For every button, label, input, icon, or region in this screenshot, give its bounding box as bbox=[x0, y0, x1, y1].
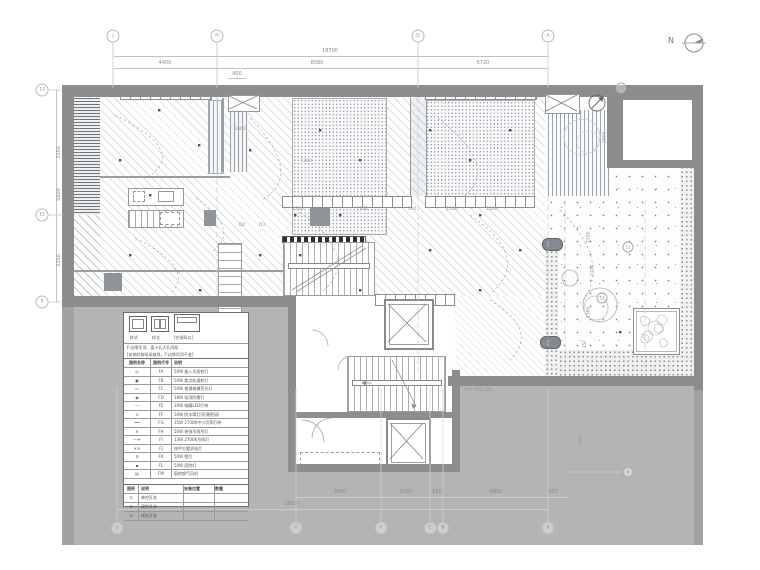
site-ground-left-edge bbox=[62, 307, 74, 545]
switch-qty bbox=[215, 494, 248, 502]
dim-bottom-segment: 650 bbox=[547, 490, 559, 495]
column-3 bbox=[310, 208, 330, 226]
grid-bubble-bottom: A bbox=[542, 522, 555, 535]
legend-row: ━━ FG 35W 2700K中小功率灯带 bbox=[124, 419, 248, 428]
terrace-hatch bbox=[455, 296, 545, 376]
stair-upper-rail bbox=[288, 263, 370, 269]
marker-label: 11 bbox=[625, 245, 630, 250]
plan-dim-label: 1200 bbox=[446, 208, 457, 213]
dim-left: 5600 bbox=[57, 187, 62, 202]
dim-top-segment: 4400 bbox=[158, 61, 173, 66]
legend-row: ◎ FA 50W 嵌入式投射灯 bbox=[124, 368, 248, 377]
grid-label: 9 bbox=[41, 300, 44, 305]
switch-header-qty: 数量 bbox=[215, 485, 248, 493]
legend-row: ✕✕ FJ 按甲方要求选灯 bbox=[124, 445, 248, 454]
grid-label: J bbox=[116, 526, 117, 531]
legend-row: —✛ FI 13W 2700K吊线灯 bbox=[124, 436, 248, 445]
switch-description: 调光开关 bbox=[139, 512, 184, 520]
switch-mount bbox=[184, 503, 215, 511]
north-arrow-icon bbox=[680, 30, 708, 56]
grid-bubble-top: A bbox=[542, 30, 555, 43]
bollard-light-2 bbox=[540, 336, 561, 349]
shaft-x-box-right bbox=[545, 94, 580, 114]
elevator-1 bbox=[384, 299, 434, 350]
switch-row: ② 双控开关 bbox=[124, 503, 248, 512]
diffuser-icon-1 bbox=[129, 316, 147, 332]
legend-row: ▭ FC 50W 普通格栅荧光灯 bbox=[124, 385, 248, 394]
legend-row: ▤ FM 厨房换气风机 bbox=[124, 470, 248, 479]
fixture-code: FD bbox=[151, 394, 172, 402]
switch-qty bbox=[215, 503, 248, 511]
floor-plan-sheet: N 18700 440085805720 400 335056003250 38… bbox=[0, 0, 760, 570]
site-ground-right-band bbox=[694, 386, 703, 545]
switch-header-desc: 说明 bbox=[139, 485, 184, 493]
grid-label: 13 bbox=[39, 88, 45, 93]
plan-dim-label: 1200 bbox=[486, 208, 497, 213]
fixture-symbol-icon: ▤ bbox=[124, 470, 151, 478]
switch-qty bbox=[215, 512, 248, 520]
fixture-description: 厨房换气风机 bbox=[172, 470, 248, 478]
grid-bubble-left: 12 bbox=[36, 209, 49, 222]
marker-label: 13 bbox=[599, 296, 604, 301]
garden-left-band bbox=[545, 250, 559, 376]
wall-tower-right bbox=[452, 370, 460, 472]
fixture-code: FB bbox=[151, 377, 172, 385]
plan-dim-label: D3 bbox=[259, 224, 265, 229]
legend-header-desc: 说明 bbox=[172, 359, 248, 367]
switch-symbol-icon: ③ bbox=[124, 512, 139, 520]
dotted-ceiling-room-1b bbox=[292, 207, 387, 235]
kitchen-appliance-1 bbox=[133, 191, 145, 202]
switch-header-mount: 安装位置 bbox=[184, 485, 215, 493]
legend-note-2: [安装时按现场放线，F:边缘吊顶不变] bbox=[124, 351, 248, 358]
switch-description: 单控开关 bbox=[139, 494, 184, 502]
plan-dim-label: 2280 bbox=[587, 232, 592, 243]
fixture-description: 50W 嵌入式投射灯 bbox=[172, 368, 248, 376]
plan-dim-label: 400 400 200 bbox=[464, 389, 493, 394]
fixture-description: 按甲方要求选灯 bbox=[172, 445, 248, 453]
fixture-symbol-icon: ✕ bbox=[124, 428, 151, 436]
dim-bottom-segment: 2160 bbox=[399, 490, 414, 495]
legend-row: ▪ FL 50W 庭院灯 bbox=[124, 462, 248, 471]
plan-marker-bubble: 11 bbox=[623, 242, 634, 253]
grid-label: B bbox=[441, 526, 444, 531]
dim-top-seg-line bbox=[113, 68, 548, 69]
switch-symbol-icon: ② bbox=[124, 503, 139, 511]
plan-dim-label: 1740 bbox=[292, 208, 303, 213]
grid-bubble-top: D bbox=[412, 30, 425, 43]
fixture-code: FE bbox=[151, 402, 172, 410]
diffuser-icon-3 bbox=[174, 314, 200, 332]
diffuser-icon-2 bbox=[151, 316, 169, 332]
wall-band-hatch bbox=[410, 98, 427, 196]
legend-header-code: 图例代号 bbox=[151, 359, 172, 367]
box-caption-3: [空调风口] bbox=[174, 335, 193, 341]
switch-row: ① 单控开关 bbox=[124, 494, 248, 503]
deck-louver-strip bbox=[74, 98, 100, 215]
fixture-symbol-icon: ┈┈ bbox=[124, 402, 151, 410]
fixture-code: FA bbox=[151, 368, 172, 376]
plan-dim-label: 2200 bbox=[591, 265, 596, 276]
fixture-symbol-icon: ♀ bbox=[124, 453, 151, 461]
switch-row: ③ 调光开关 bbox=[124, 512, 248, 521]
legend-row: ┈┈ FE 20W 暗藏LED灯带 bbox=[124, 402, 248, 411]
elevator-2 bbox=[386, 418, 431, 468]
grid-label: A bbox=[546, 526, 549, 531]
marker-label: 11 bbox=[618, 86, 623, 91]
rock-planter-inner bbox=[636, 311, 677, 352]
plan-dim-label: 1260 bbox=[300, 160, 311, 165]
dotted-ceiling-room-2 bbox=[425, 100, 535, 198]
kitchen-oven bbox=[160, 212, 180, 225]
fixture-code: FC bbox=[151, 385, 172, 393]
partition-room-a bbox=[222, 98, 224, 172]
dim-top-total-line bbox=[113, 56, 548, 57]
switch-table: 图例 说明 安装位置 数量 ① 单控开关 ② 双控开关 ③ 调光开关 bbox=[124, 484, 248, 521]
dim-bottom-segment: 560 bbox=[431, 490, 443, 495]
fixture-symbol-icon: ◎ bbox=[124, 368, 151, 376]
fixture-code: FK bbox=[151, 453, 172, 461]
plan-dim-label: D2 bbox=[239, 224, 245, 229]
switch-description: 双控开关 bbox=[139, 503, 184, 511]
dim-bottom-segment: 3800 bbox=[333, 490, 348, 495]
fixture-description: 35W 2700K中小功率灯带 bbox=[172, 419, 248, 427]
dim-top-segment: 5720 bbox=[476, 61, 491, 66]
garden-deck bbox=[548, 110, 610, 196]
switch-symbol-icon: ① bbox=[124, 494, 139, 502]
fixture-description: 50W 焦点轨道射灯 bbox=[172, 377, 248, 385]
skylight-room-void bbox=[623, 100, 692, 160]
plan-dim-label: 310 bbox=[408, 208, 417, 213]
fixture-code: FG bbox=[151, 419, 172, 427]
fixture-symbol-icon: —✛ bbox=[124, 436, 151, 444]
switch-header-symbol: 图例 bbox=[124, 485, 139, 493]
grid-bubble-bottom: G bbox=[290, 522, 303, 535]
fixture-symbol-icon: ▣ bbox=[124, 377, 151, 385]
marker-label: 4 bbox=[627, 470, 630, 475]
fixture-description: 20W 暗藏LED灯带 bbox=[172, 402, 248, 410]
fixture-symbol-icon: ▭ bbox=[124, 385, 151, 393]
north-arrow: N bbox=[668, 30, 708, 56]
dotted-ceiling-room-1 bbox=[292, 98, 387, 198]
dim-bottom-total: 18700 bbox=[283, 502, 301, 507]
legend-row: ◉ FD 18W 吸顶防雾灯 bbox=[124, 394, 248, 403]
plan-marker-bubble: 4 bbox=[623, 467, 634, 478]
plan-dim-label: 2420 bbox=[579, 435, 584, 446]
fixture-symbol-icon: ◉ bbox=[124, 394, 151, 402]
plan-marker-bubble: 13 bbox=[597, 293, 608, 304]
grid-bubble-top: H bbox=[211, 30, 224, 43]
switch-table-header: 图例 说明 安装位置 数量 bbox=[124, 485, 248, 494]
legend-table-header: 图例名称 图例代号 说明 bbox=[124, 359, 248, 368]
stair-tower-rail bbox=[352, 380, 442, 386]
fixture-code: FH bbox=[151, 428, 172, 436]
column-1 bbox=[104, 273, 122, 291]
column-2 bbox=[204, 210, 216, 226]
fixture-description: 50W 壁灯 bbox=[172, 453, 248, 461]
dim-bottom-segment: 4850 bbox=[489, 490, 504, 495]
shaft-x-box-left bbox=[228, 95, 260, 112]
dim-top-sub: 400 bbox=[231, 72, 243, 77]
plan-dim-label: 1760 bbox=[356, 208, 367, 213]
fixture-description: 50W 普通格栅荧光灯 bbox=[172, 385, 248, 393]
plan-marker-bubble: 11 bbox=[616, 83, 627, 94]
fixture-description: 13W 2700K吊线灯 bbox=[172, 436, 248, 444]
dim-top-total: 18700 bbox=[321, 49, 339, 54]
grid-bubble-top: J bbox=[107, 30, 120, 43]
grid-bubble-bottom: J bbox=[111, 522, 124, 535]
partition-room-a-bottom bbox=[100, 176, 230, 178]
partition-hall bbox=[74, 270, 288, 272]
fixture-symbol-icon: ▪ bbox=[124, 462, 151, 470]
stair-upper bbox=[283, 242, 375, 296]
dim-top-segment: 8580 bbox=[310, 61, 325, 66]
grid-bubble-bottom: B bbox=[437, 522, 450, 535]
legend-header-name: 图例名称 bbox=[124, 359, 151, 367]
legend-row: ♀ FK 50W 壁灯 bbox=[124, 453, 248, 462]
fixture-code: FM bbox=[151, 470, 172, 478]
plan-dim-label: 1580 bbox=[587, 307, 592, 318]
dim-left: 3250 bbox=[57, 253, 62, 268]
plan-dim-label: 1860 bbox=[234, 128, 245, 133]
fixture-code: FJ bbox=[151, 445, 172, 453]
plan-dim-label: 350 bbox=[584, 340, 589, 349]
fixture-description: 50W 防水筒灯(防潮密闭) bbox=[172, 411, 248, 419]
grid-label: A bbox=[546, 34, 549, 39]
fixture-description: 18W 吸顶防雾灯 bbox=[172, 394, 248, 402]
fixture-code: FI bbox=[151, 436, 172, 444]
wall-tower-bottom bbox=[288, 464, 460, 472]
fixture-symbol-icon: ━━ bbox=[124, 419, 151, 427]
box-caption-2: 样式 bbox=[152, 335, 160, 341]
grid-label: 12 bbox=[39, 213, 45, 218]
glazing-row-2 bbox=[425, 196, 535, 208]
legend-row: ▣ FB 50W 焦点轨道射灯 bbox=[124, 377, 248, 386]
wall-left bbox=[62, 85, 74, 307]
grid-bubble-left: 9 bbox=[36, 296, 49, 309]
north-label: N bbox=[668, 36, 674, 45]
grid-bubble-bottom: C bbox=[424, 522, 437, 535]
fixture-description: 50W 装饰吊线吊灯 bbox=[172, 428, 248, 436]
plan-dim-label: 3600 bbox=[603, 132, 608, 143]
legend-table: 图例名称 图例代号 说明 ◎ FA 50W 嵌入式投射灯 ▣ FB 50W 焦点… bbox=[124, 358, 248, 479]
kitchen-appliance-2 bbox=[158, 191, 174, 202]
dim-left: 3350 bbox=[57, 145, 62, 160]
fixture-symbol-icon: ✕✕ bbox=[124, 445, 151, 453]
grid-label: C bbox=[428, 526, 431, 531]
grid-label: G bbox=[294, 526, 298, 531]
grid-bubble-left: 13 bbox=[36, 84, 49, 97]
fixture-code: FF bbox=[151, 411, 172, 419]
grid-label: F bbox=[380, 526, 383, 531]
switch-mount bbox=[184, 494, 215, 502]
grid-label: D bbox=[416, 34, 419, 39]
legend-note-1: F:边缘吊顶、离小孔大孔间距 bbox=[124, 344, 248, 351]
legend-sample-boxes: 样式 样式 [空调风口] bbox=[124, 313, 248, 344]
legend-row: ✕ FH 50W 装饰吊线吊灯 bbox=[124, 428, 248, 437]
wall-bottom-left bbox=[62, 296, 296, 307]
deck-lower-hatch bbox=[74, 215, 100, 296]
grid-bubble-bottom: F bbox=[375, 522, 388, 535]
switch-mount bbox=[184, 512, 215, 520]
grid-label: J bbox=[112, 34, 113, 39]
fixture-description: 50W 庭院灯 bbox=[172, 462, 248, 470]
lighting-legend: 样式 样式 [空调风口] F:边缘吊顶、离小孔大孔间距 [安装时按现场放线，F:… bbox=[123, 312, 249, 507]
dim-bottom-seg-line bbox=[296, 497, 568, 498]
wall-garden-bottom bbox=[448, 376, 703, 386]
fixture-symbol-icon: ⊙ bbox=[124, 411, 151, 419]
dim-top-sub-line bbox=[228, 78, 246, 79]
grid-label: H bbox=[215, 34, 218, 39]
box-caption-1: 样式 bbox=[130, 335, 138, 341]
fixture-code: FL bbox=[151, 462, 172, 470]
legend-row: ⊙ FF 50W 防水筒灯(防潮密闭) bbox=[124, 411, 248, 420]
bollard-light-1 bbox=[542, 238, 563, 251]
